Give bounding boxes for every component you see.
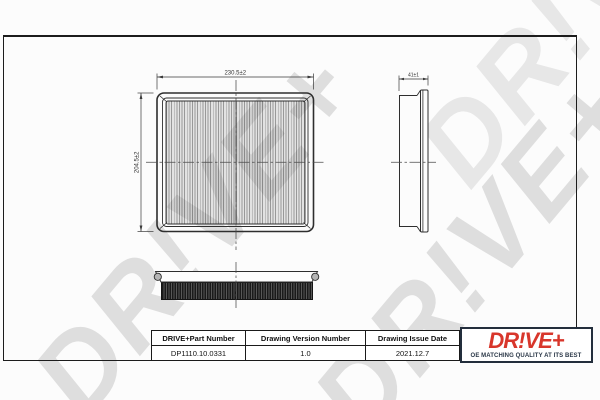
dimension-depth: 41±1 [399, 73, 428, 92]
dimension-width: 230.5±2 [157, 71, 314, 90]
issue-date-value: 2021.12.7 [366, 346, 460, 361]
front-width-dim-label: 230.5±2 [224, 71, 246, 77]
drawing-version-value: 1.0 [246, 346, 366, 361]
part-number-value: DP1110.10.0331 [152, 346, 246, 361]
seal-bead-left [154, 273, 161, 280]
logo-brand-text: DR!VE+ [488, 331, 563, 351]
bottom-view [154, 272, 319, 283]
issue-date-header: Drawing Issue Date [366, 331, 460, 346]
front-height-dim-label: 204.5±2 [135, 151, 141, 173]
spec-table-value-row: DP1110.10.0331 1.0 2021.12.7 [152, 346, 460, 361]
spec-table-header-row: DRIVE+Part Number Drawing Version Number… [152, 331, 460, 346]
part-number-header: DRIVE+Part Number [152, 331, 246, 346]
logo-tagline: OE MATCHING QUALITY AT ITS BEST [471, 353, 582, 359]
spec-table: DRIVE+Part Number Drawing Version Number… [151, 330, 460, 361]
technical-drawing-page: DR!VE+ DR!VE+ DR!VE+ [0, 0, 600, 400]
side-view [400, 90, 429, 232]
drawing-version-header: Drawing Version Number [246, 331, 366, 346]
side-depth-dim-label: 41±1 [408, 73, 419, 79]
seal-bead-right [312, 273, 319, 280]
driveplus-logo: DR!VE+ OE MATCHING QUALITY AT ITS BEST [460, 327, 593, 363]
